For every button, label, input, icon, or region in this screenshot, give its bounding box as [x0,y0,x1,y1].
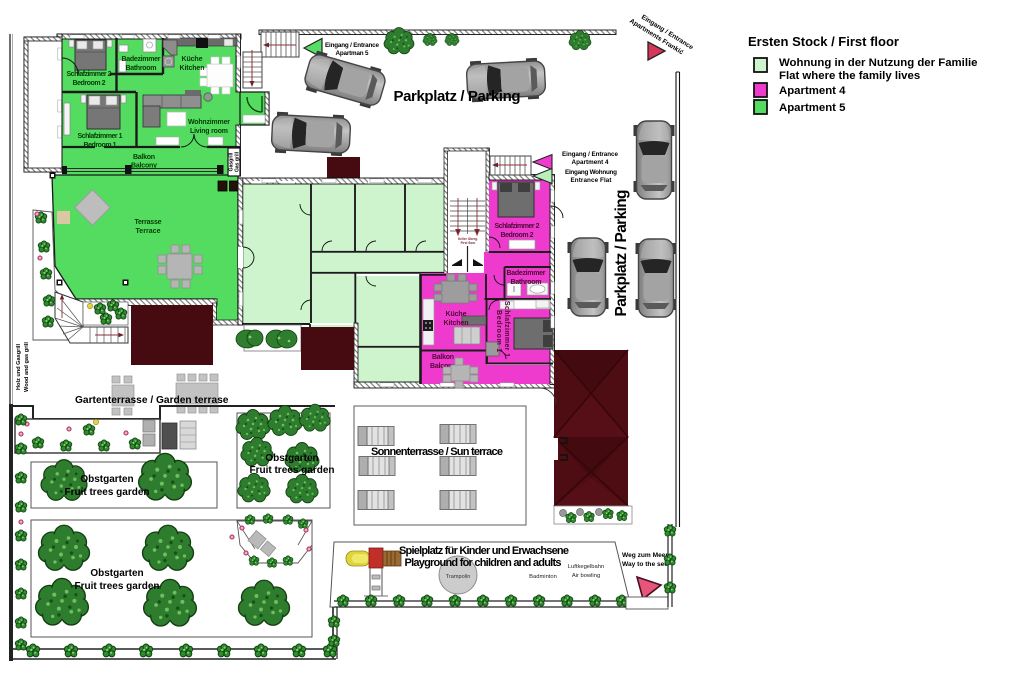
svg-text:Playground for children and ad: Playground for children and adults [405,557,562,569]
svg-text:Fruit trees garden: Fruit trees garden [64,487,149,498]
svg-text:Luftkegelbahn: Luftkegelbahn [568,564,604,570]
svg-text:Wohnung in der Nutzung der Fam: Wohnung in der Nutzung der Familie [779,57,978,69]
svg-text:Terrasse: Terrasse [135,219,162,226]
svg-text:Air bowling: Air bowling [572,573,600,579]
svg-text:Bedroom 2: Bedroom 2 [73,80,106,87]
svg-text:Bedroom 1: Bedroom 1 [84,142,117,149]
svg-text:Schlafzimmer 2: Schlafzimmer 2 [67,71,112,78]
svg-text:Eingang / Entrance: Eingang / Entrance [562,151,618,158]
svg-text:Sonnenterrasse / Sun terrace: Sonnenterrasse / Sun terrace [371,446,503,458]
svg-text:Entrance Flat: Entrance Flat [571,177,613,184]
svg-text:Flat where the family lives: Flat where the family lives [779,70,920,82]
svg-text:Apartman 5: Apartman 5 [336,50,369,57]
svg-text:Bathroom: Bathroom [126,65,157,72]
svg-text:Schlafzimmer 1: Schlafzimmer 1 [503,301,510,357]
svg-text:Living room: Living room [190,128,228,135]
svg-text:Wohnzimmer: Wohnzimmer [188,119,230,126]
svg-text:Schlafzimmer 2: Schlafzimmer 2 [495,223,540,230]
svg-text:Fruit trees garden: Fruit trees garden [249,465,334,476]
svg-text:Obstgarten: Obstgarten [265,453,318,464]
svg-text:Bedroom 2: Bedroom 2 [501,232,534,239]
svg-text:Obstgarten: Obstgarten [90,568,143,579]
svg-text:Holz und Gasgrill: Holz und Gasgrill [16,344,22,390]
svg-text:Bedroom 1: Bedroom 1 [495,310,502,352]
svg-text:Eingang / Entrance: Eingang / Entrance [325,42,379,49]
svg-text:Way to the see: Way to the see [622,561,668,568]
svg-text:Spielplatz für Kinder und Erw: Spielplatz für Kinder und Erwachsene [399,545,569,557]
svg-text:Parkplatz / Parking: Parkplatz / Parking [394,88,521,105]
svg-text:Gas grill: Gas grill [235,151,241,172]
svg-text:Parkplatz / Parking: Parkplatz / Parking [613,190,630,317]
svg-text:Apartment 4: Apartment 4 [779,85,846,97]
svg-text:Kitchen: Kitchen [180,65,205,72]
svg-text:First floor: First floor [461,241,477,245]
svg-text:Ersten Stock / First floor: Ersten Stock / First floor [748,34,899,49]
svg-text:Balkon: Balkon [432,354,454,361]
svg-text:Apartment 5: Apartment 5 [779,102,846,114]
svg-text:Trampolin: Trampolin [446,574,471,580]
svg-text:Balkon: Balkon [133,154,155,161]
svg-text:Fruit trees garden: Fruit trees garden [74,581,159,592]
svg-text:Badezimmer: Badezimmer [122,56,161,63]
svg-text:Apartment 4: Apartment 4 [572,159,609,166]
svg-text:Kitchen: Kitchen [444,320,469,327]
svg-text:Obstgarten: Obstgarten [80,474,133,485]
svg-text:Eingang Wohnung: Eingang Wohnung [565,169,617,176]
svg-text:Bathroom: Bathroom [511,279,542,286]
svg-text:Wood and gas grill: Wood and gas grill [24,342,30,392]
svg-text:Terrace: Terrace [136,228,161,235]
svg-text:Schlafzimmer 1: Schlafzimmer 1 [78,133,123,140]
svg-text:Küche: Küche [446,311,467,318]
svg-text:Küche: Küche [182,56,203,63]
svg-text:Badezimmer: Badezimmer [507,270,546,277]
svg-text:Gartenterrasse / Garden terras: Gartenterrasse / Garden terrase [75,395,229,406]
svg-text:Weg zum Meer: Weg zum Meer [622,552,668,559]
svg-text:Badminton: Badminton [529,574,557,580]
